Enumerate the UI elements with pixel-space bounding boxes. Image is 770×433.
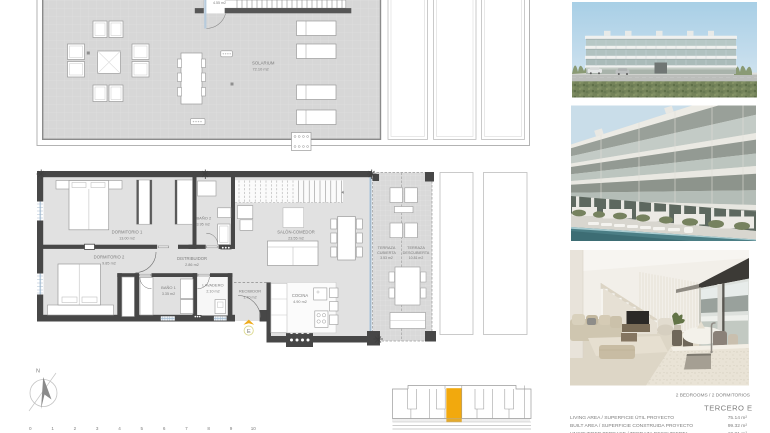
svg-text:3: 3 [96,426,99,431]
svg-text:DISTRIBUIDOR: DISTRIBUIDOR [177,256,207,261]
svg-text:13.00 m2: 13.00 m2 [119,237,135,241]
svg-text:23.55 m2: 23.55 m2 [288,237,304,241]
svg-text:72.10 m2: 72.10 m2 [253,67,269,72]
svg-text:3.35 m2: 3.35 m2 [162,292,175,296]
svg-text:8: 8 [207,426,210,431]
svg-text:TERRAZA: TERRAZA [378,246,396,250]
svg-text:4: 4 [118,426,121,431]
svg-text:N: N [36,369,40,375]
svg-text:2 BEDROOMS / 2 DORMITORIOS: 2 BEDROOMS / 2 DORMITORIOS [676,393,750,399]
svg-text:9: 9 [230,426,233,431]
svg-text:9.85 m2: 9.85 m2 [102,262,116,266]
svg-text:2.86 m2: 2.86 m2 [185,263,199,267]
svg-text:75.14 m²: 75.14 m² [728,415,748,421]
svg-text:LAVADERO: LAVADERO [202,283,223,288]
svg-text:DESCUBIERTA: DESCUBIERTA [403,251,430,255]
svg-text:SALÓN-COMEDOR: SALÓN-COMEDOR [277,230,314,235]
svg-text:BUILT AREA / SUPERFICIE CONSTR: BUILT AREA / SUPERFICIE CONSTRUIDA PROYE… [570,423,693,429]
svg-text:4.55 m2: 4.55 m2 [213,1,226,5]
svg-text:2: 2 [74,426,77,431]
svg-text:DORMITORIO 2: DORMITORIO 2 [94,255,125,260]
svg-text:BAÑO 2: BAÑO 2 [197,216,212,221]
svg-text:0: 0 [29,426,32,431]
svg-text:TERRAZA: TERRAZA [407,246,425,250]
svg-text:99.32 m²: 99.32 m² [728,423,748,429]
svg-text:DORMITORIO 1: DORMITORIO 1 [112,230,143,235]
svg-text:5: 5 [141,426,144,431]
svg-text:SOLARIUM: SOLARIUM [252,61,275,66]
svg-text:6: 6 [163,426,166,431]
svg-text:E: E [247,329,251,335]
svg-text:3.53 m2: 3.53 m2 [380,256,393,260]
svg-text:10: 10 [251,426,257,431]
svg-text:10.81 m2: 10.81 m2 [409,256,424,260]
svg-text:RECIBIDOR: RECIBIDOR [239,289,261,294]
svg-text:4.90 m2: 4.90 m2 [293,300,307,304]
svg-text:COCINA: COCINA [292,293,308,298]
svg-text:7: 7 [185,426,188,431]
svg-text:LIVING AREA / SUPERFICIE ÚTIL: LIVING AREA / SUPERFICIE ÚTIL PROYECTO [570,414,674,421]
svg-text:TERCERO E: TERCERO E [704,404,752,413]
svg-text:BAÑO 1: BAÑO 1 [161,285,176,290]
svg-text:1: 1 [51,426,54,431]
svg-text:3.95 m2: 3.95 m2 [197,223,210,227]
svg-text:2.10 m2: 2.10 m2 [206,290,219,294]
svg-text:CUBIERTA: CUBIERTA [377,251,396,255]
